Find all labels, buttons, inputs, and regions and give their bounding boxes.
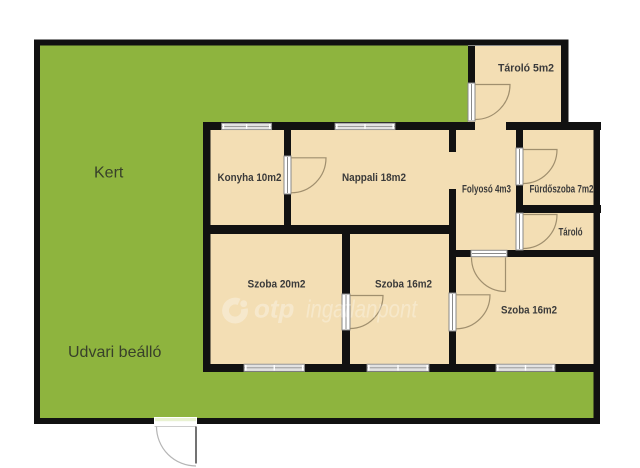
svg-text:otp: otp bbox=[254, 294, 295, 324]
svg-text:Konyha 10m2: Konyha 10m2 bbox=[218, 172, 282, 184]
svg-text:Kert: Kert bbox=[94, 165, 124, 182]
svg-text:Nappali 18m2: Nappali 18m2 bbox=[342, 172, 406, 184]
svg-text:ingatlanpont: ingatlanpont bbox=[306, 296, 418, 324]
svg-text:Folyosó 4m3: Folyosó 4m3 bbox=[462, 184, 511, 196]
svg-text:Tároló 5m2: Tároló 5m2 bbox=[498, 63, 554, 75]
svg-text:Szoba 20m2: Szoba 20m2 bbox=[248, 279, 306, 291]
svg-text:Fürdőszoba 7m2: Fürdőszoba 7m2 bbox=[530, 184, 594, 196]
svg-text:Tároló: Tároló bbox=[559, 227, 583, 239]
svg-text:Udvari beálló: Udvari beálló bbox=[68, 344, 161, 361]
svg-text:Szoba 16m2: Szoba 16m2 bbox=[501, 305, 557, 317]
svg-text:Szoba 16m2: Szoba 16m2 bbox=[375, 279, 432, 291]
